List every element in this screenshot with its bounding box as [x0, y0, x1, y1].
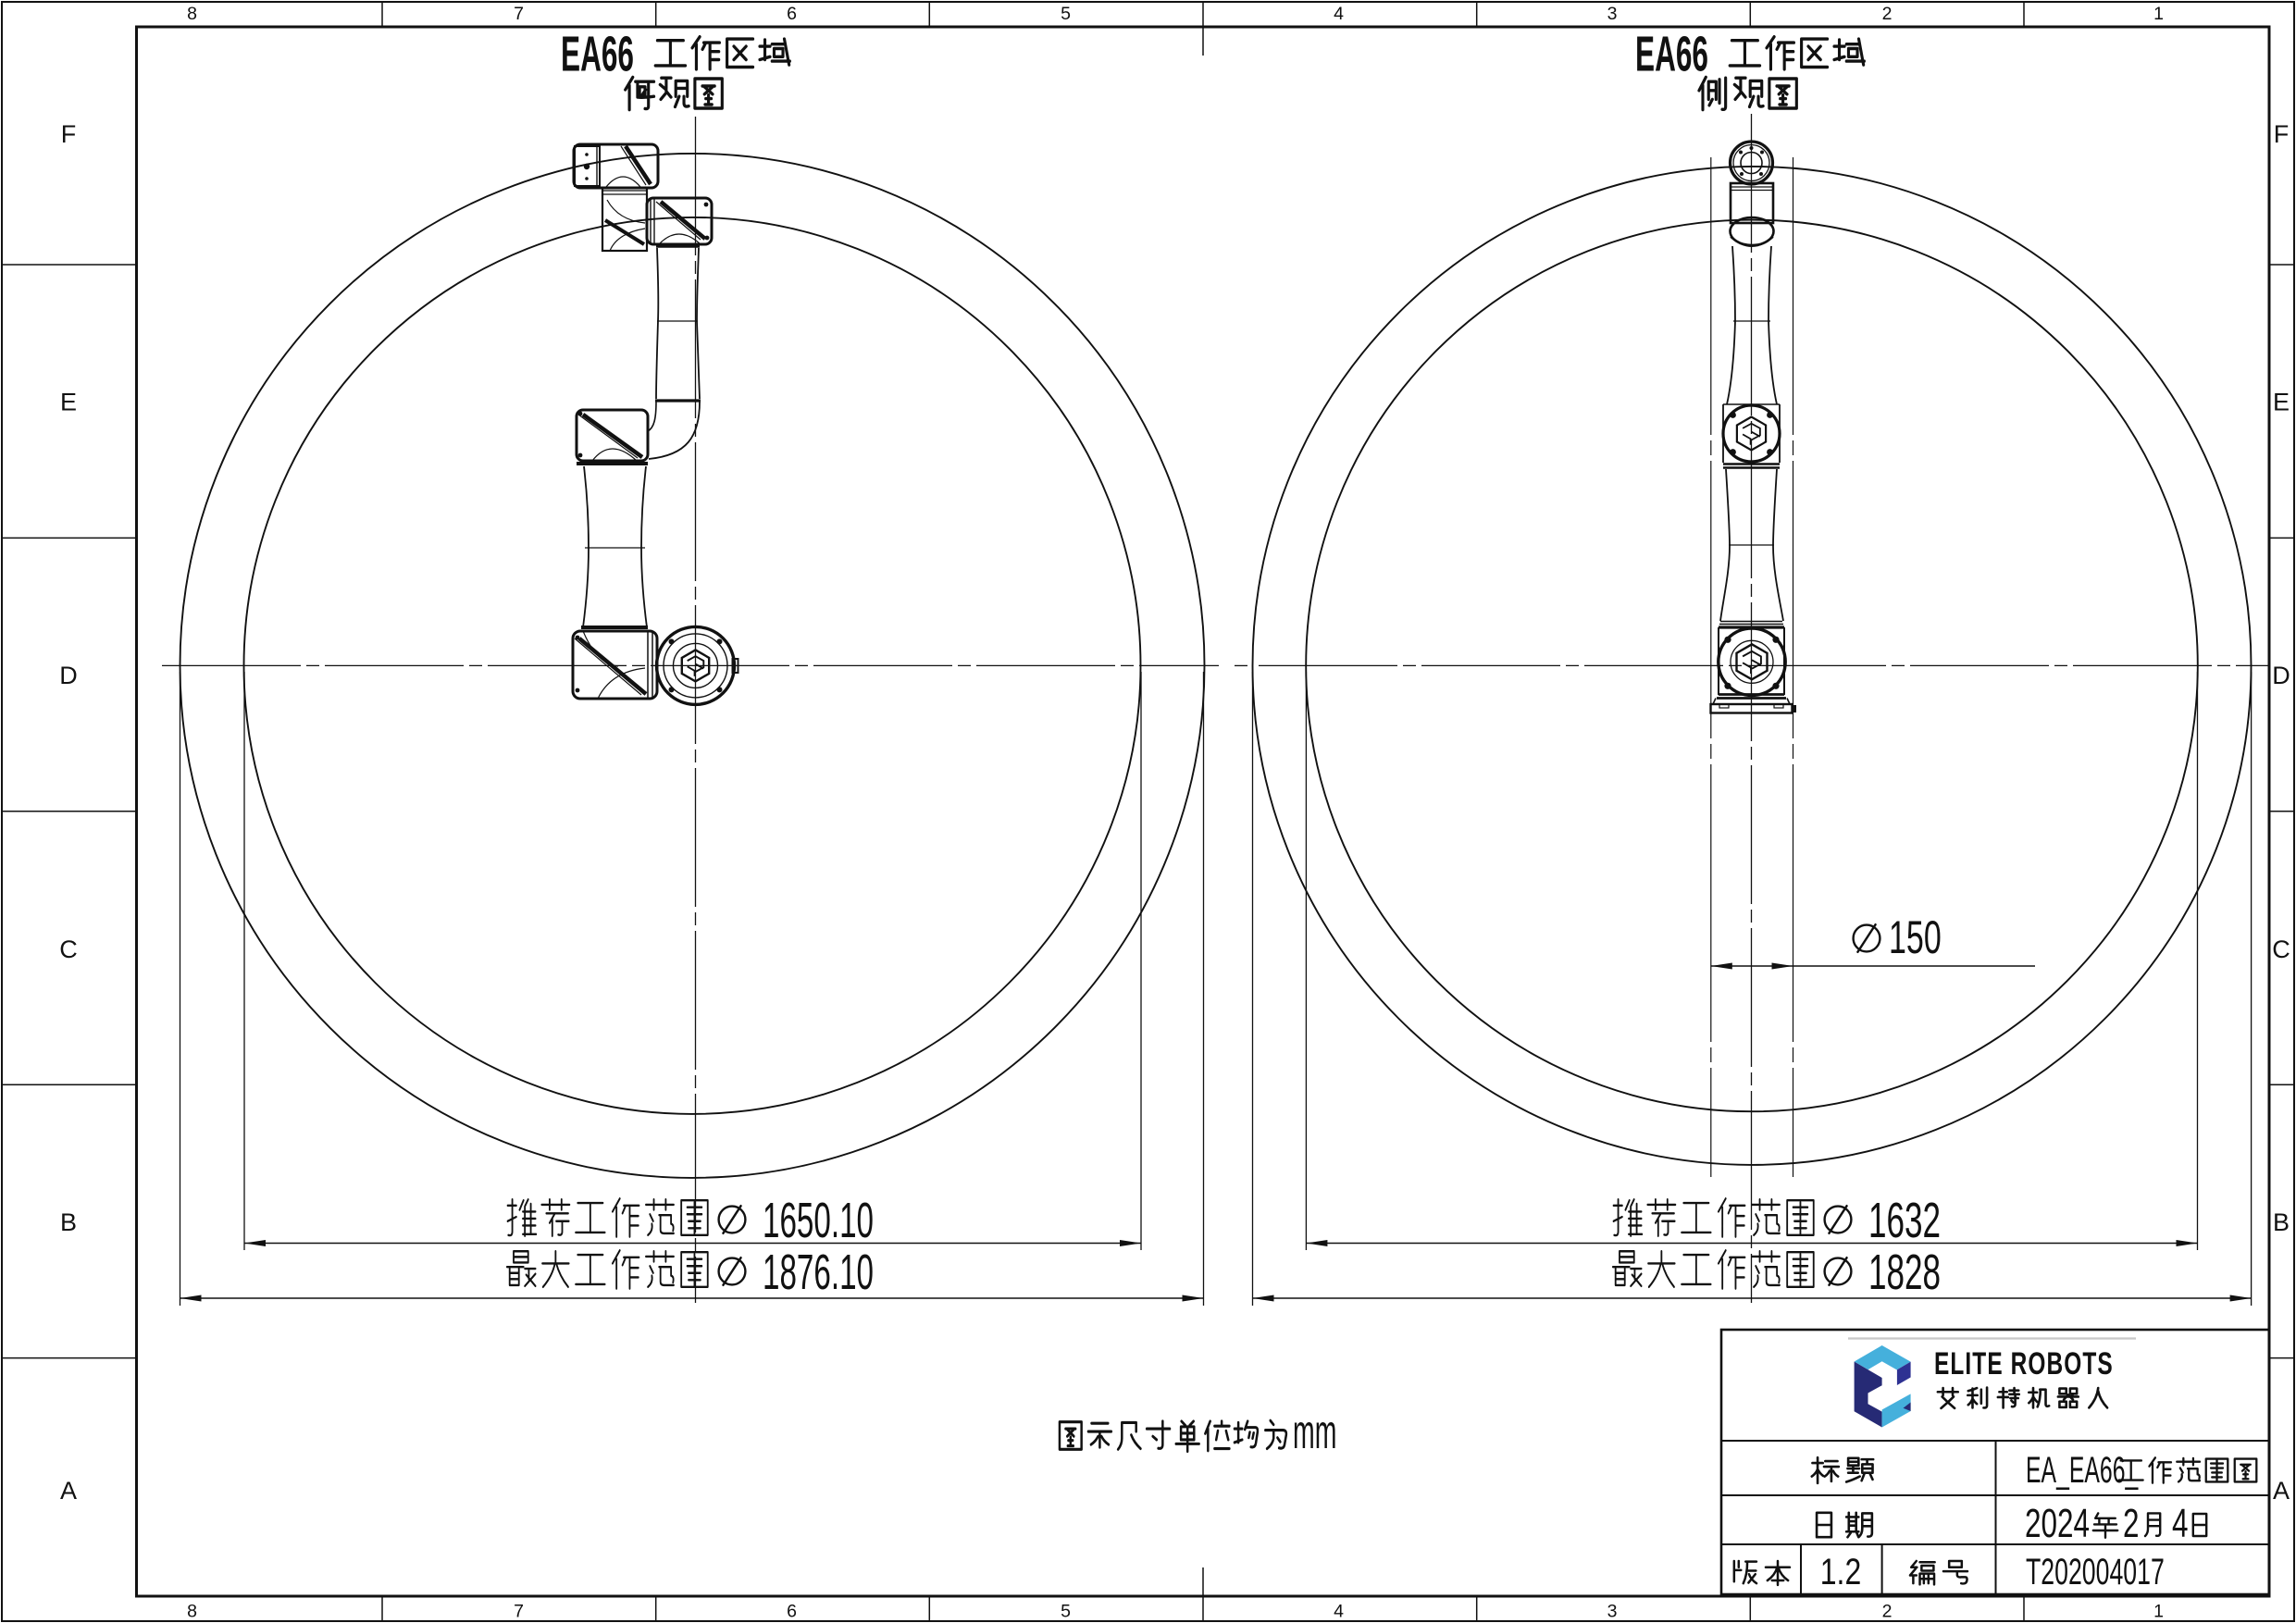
- svg-text:1650.10: 1650.10: [763, 1193, 874, 1248]
- svg-text:C: C: [2272, 935, 2290, 963]
- svg-text:7: 7: [514, 4, 524, 24]
- svg-text:8: 8: [187, 4, 197, 24]
- svg-text:D: D: [2272, 662, 2290, 689]
- svg-text:3: 3: [1607, 4, 1618, 24]
- svg-text:F: F: [2274, 120, 2290, 148]
- svg-text:5: 5: [1061, 1602, 1071, 1622]
- svg-text:3: 3: [1607, 1602, 1618, 1622]
- svg-text:2024: 2024: [2025, 1501, 2090, 1546]
- svg-text:4: 4: [1334, 1602, 1344, 1622]
- svg-text:EA66: EA66: [561, 27, 634, 82]
- svg-text:B: B: [2273, 1208, 2290, 1236]
- svg-text:1: 1: [2153, 4, 2164, 24]
- svg-text:7: 7: [514, 1602, 524, 1622]
- svg-text:B: B: [60, 1208, 77, 1236]
- svg-text:2: 2: [2123, 1501, 2139, 1546]
- svg-text:D: D: [59, 662, 78, 689]
- svg-text:2: 2: [1882, 1602, 1893, 1622]
- svg-text:4: 4: [1334, 4, 1344, 24]
- svg-text:F: F: [61, 120, 77, 148]
- svg-text:1876.10: 1876.10: [763, 1245, 874, 1300]
- svg-text:A: A: [60, 1477, 77, 1505]
- svg-text:mm: mm: [1293, 1405, 1336, 1458]
- svg-text:ELITE ROBOTS: ELITE ROBOTS: [1934, 1346, 2114, 1381]
- svg-text:EA66: EA66: [1635, 27, 1708, 82]
- svg-text:6: 6: [787, 4, 797, 24]
- svg-text:8: 8: [187, 1602, 197, 1622]
- svg-text:T202004017: T202004017: [2026, 1552, 2165, 1593]
- svg-text:A: A: [2273, 1477, 2290, 1505]
- svg-text:C: C: [59, 935, 78, 963]
- svg-text:E: E: [2273, 389, 2290, 416]
- svg-text:150: 150: [1889, 912, 1942, 964]
- svg-text:EA_EA66_: EA_EA66_: [2026, 1450, 2139, 1491]
- svg-text:1828: 1828: [1868, 1244, 1941, 1299]
- svg-text:2: 2: [1882, 4, 1893, 24]
- svg-text:1632: 1632: [1868, 1192, 1941, 1247]
- svg-text:5: 5: [1061, 4, 1071, 24]
- svg-text:1: 1: [2153, 1602, 2164, 1622]
- svg-text:E: E: [60, 389, 77, 416]
- svg-text:4: 4: [2172, 1501, 2188, 1546]
- svg-text:1.2: 1.2: [1820, 1551, 1861, 1592]
- svg-text:6: 6: [787, 1602, 797, 1622]
